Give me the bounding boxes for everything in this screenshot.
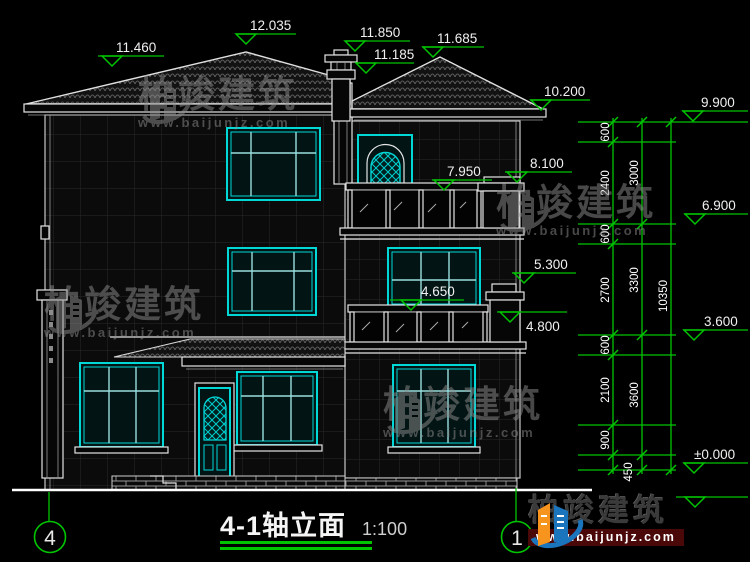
window-3f-left xyxy=(227,128,320,200)
drawing-scale: 1:100 xyxy=(362,519,407,539)
svg-text:11.685: 11.685 xyxy=(437,31,477,46)
dim-label: 3600 xyxy=(629,382,641,408)
dim-label: 600 xyxy=(600,224,612,243)
left-roof-fascia xyxy=(24,104,346,112)
axis-bubble-4: 4 xyxy=(35,492,66,553)
dim-label: 900 xyxy=(600,430,612,449)
wall-bracket xyxy=(41,226,49,239)
plinth-left xyxy=(112,476,345,490)
svg-text:11.185: 11.185 xyxy=(374,47,414,62)
svg-text:9.900: 9.900 xyxy=(701,95,735,110)
elevation-marker: ±0.000 xyxy=(683,447,748,473)
title-underline xyxy=(220,547,372,550)
window-sill xyxy=(75,447,168,453)
balcony-upper-slab xyxy=(340,228,524,235)
plinth-right xyxy=(345,478,517,490)
dim-label: 2700 xyxy=(600,277,612,303)
svg-text:1: 1 xyxy=(511,527,523,550)
elevation-marker: 11.685 xyxy=(422,31,484,57)
elevation-drawing: 600 2400 600 2700 600 2100 900 3000 3300… xyxy=(0,0,750,562)
footer-logo-icon xyxy=(528,494,584,558)
elevation-marker: 3.600 xyxy=(683,314,748,340)
balcony-lower-rail xyxy=(348,305,488,312)
window-1f-right xyxy=(388,365,480,453)
elevation-marker-unlabeled xyxy=(676,497,748,507)
footer-logo: 柏竣建筑 www.baijunjz.com xyxy=(528,494,684,546)
svg-text:5.300: 5.300 xyxy=(534,257,568,272)
drawing-title: 4-1轴立面 xyxy=(220,511,346,541)
dim-label: 2400 xyxy=(600,170,612,196)
dim-label: 3300 xyxy=(629,267,641,293)
building xyxy=(12,50,592,490)
svg-text:7.950: 7.950 xyxy=(447,164,481,179)
elevation-marker: 5.300 xyxy=(512,257,576,283)
svg-text:4: 4 xyxy=(44,527,56,550)
elevation-marker: 11.185 xyxy=(356,47,414,73)
elevation-marker: 9.900 xyxy=(682,95,748,121)
right-roof-fascia xyxy=(350,109,546,117)
svg-text:10.200: 10.200 xyxy=(544,84,585,99)
cad-elevation-screenshot: 600 2400 600 2700 600 2100 900 3000 3300… xyxy=(0,0,750,562)
window-1f-middle xyxy=(232,372,322,451)
svg-text:11.850: 11.850 xyxy=(360,25,400,40)
window-sill xyxy=(388,447,480,453)
elevation-marker: 10.200 xyxy=(530,84,590,110)
elevation-marker: 12.035 xyxy=(236,18,296,44)
svg-text:4.800: 4.800 xyxy=(526,319,560,334)
window-2f-left xyxy=(228,248,316,315)
balcony-upper-pillar xyxy=(483,191,519,228)
elevation-marker: 6.900 xyxy=(684,198,748,224)
entrance-door xyxy=(195,383,234,478)
elevation-marker: 11.460 xyxy=(98,40,164,66)
dim-label: 600 xyxy=(600,122,612,141)
dim-label: 10350 xyxy=(658,280,670,312)
left-roof xyxy=(26,52,350,104)
dim-label: 2100 xyxy=(600,377,612,403)
balcony-lower-slab xyxy=(338,342,526,349)
svg-text:±0.000: ±0.000 xyxy=(694,447,735,462)
svg-text:3.600: 3.600 xyxy=(704,314,738,329)
balcony-upper-rail xyxy=(346,183,482,190)
balcony-door-window xyxy=(388,248,480,308)
svg-text:8.100: 8.100 xyxy=(530,156,564,171)
window-sill xyxy=(232,445,322,451)
svg-text:6.900: 6.900 xyxy=(702,198,736,213)
title-underline xyxy=(220,541,372,544)
right-roof xyxy=(352,57,543,109)
dim-label: 600 xyxy=(600,335,612,354)
balcony-upper xyxy=(340,177,524,239)
svg-text:12.035: 12.035 xyxy=(250,18,291,33)
svg-text:4.650: 4.650 xyxy=(421,284,455,299)
title-block: 4-1轴立面1:100 xyxy=(220,504,480,543)
svg-text:11.460: 11.460 xyxy=(116,40,156,55)
dim-label: 450 xyxy=(623,462,635,481)
window-1f-left xyxy=(75,363,168,453)
balcony-lower-pillar xyxy=(490,300,520,342)
balcony-lower-pillar-top xyxy=(492,284,516,292)
dim-label: 3000 xyxy=(629,160,641,186)
